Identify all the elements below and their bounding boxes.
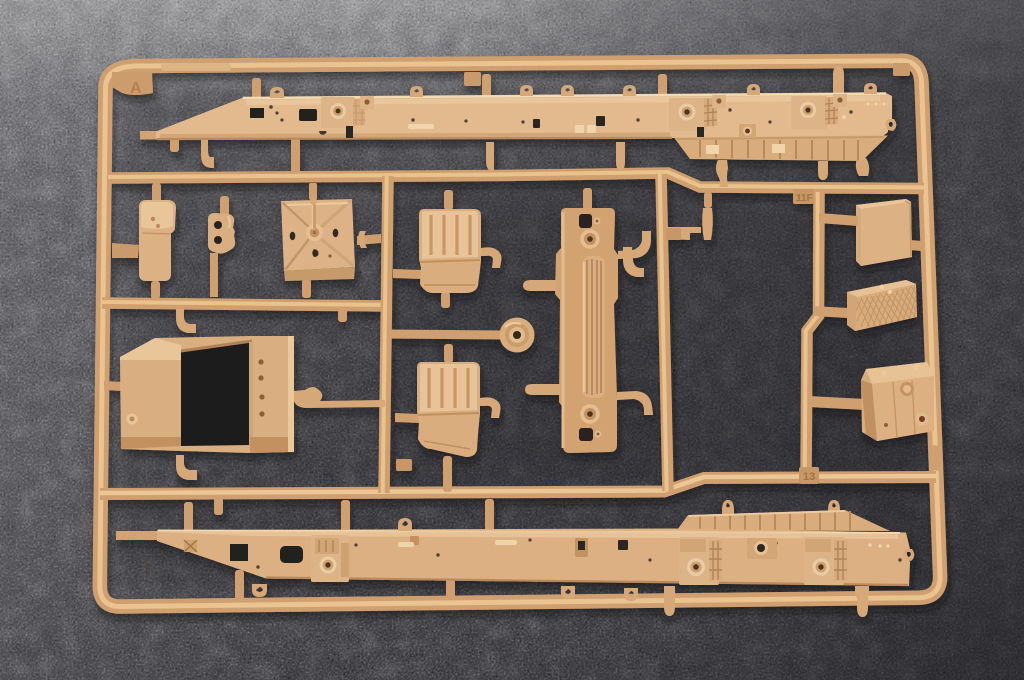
svg-text:11F: 11F	[796, 193, 813, 204]
svg-text:13: 13	[803, 471, 815, 483]
svg-text:A: A	[130, 80, 142, 97]
